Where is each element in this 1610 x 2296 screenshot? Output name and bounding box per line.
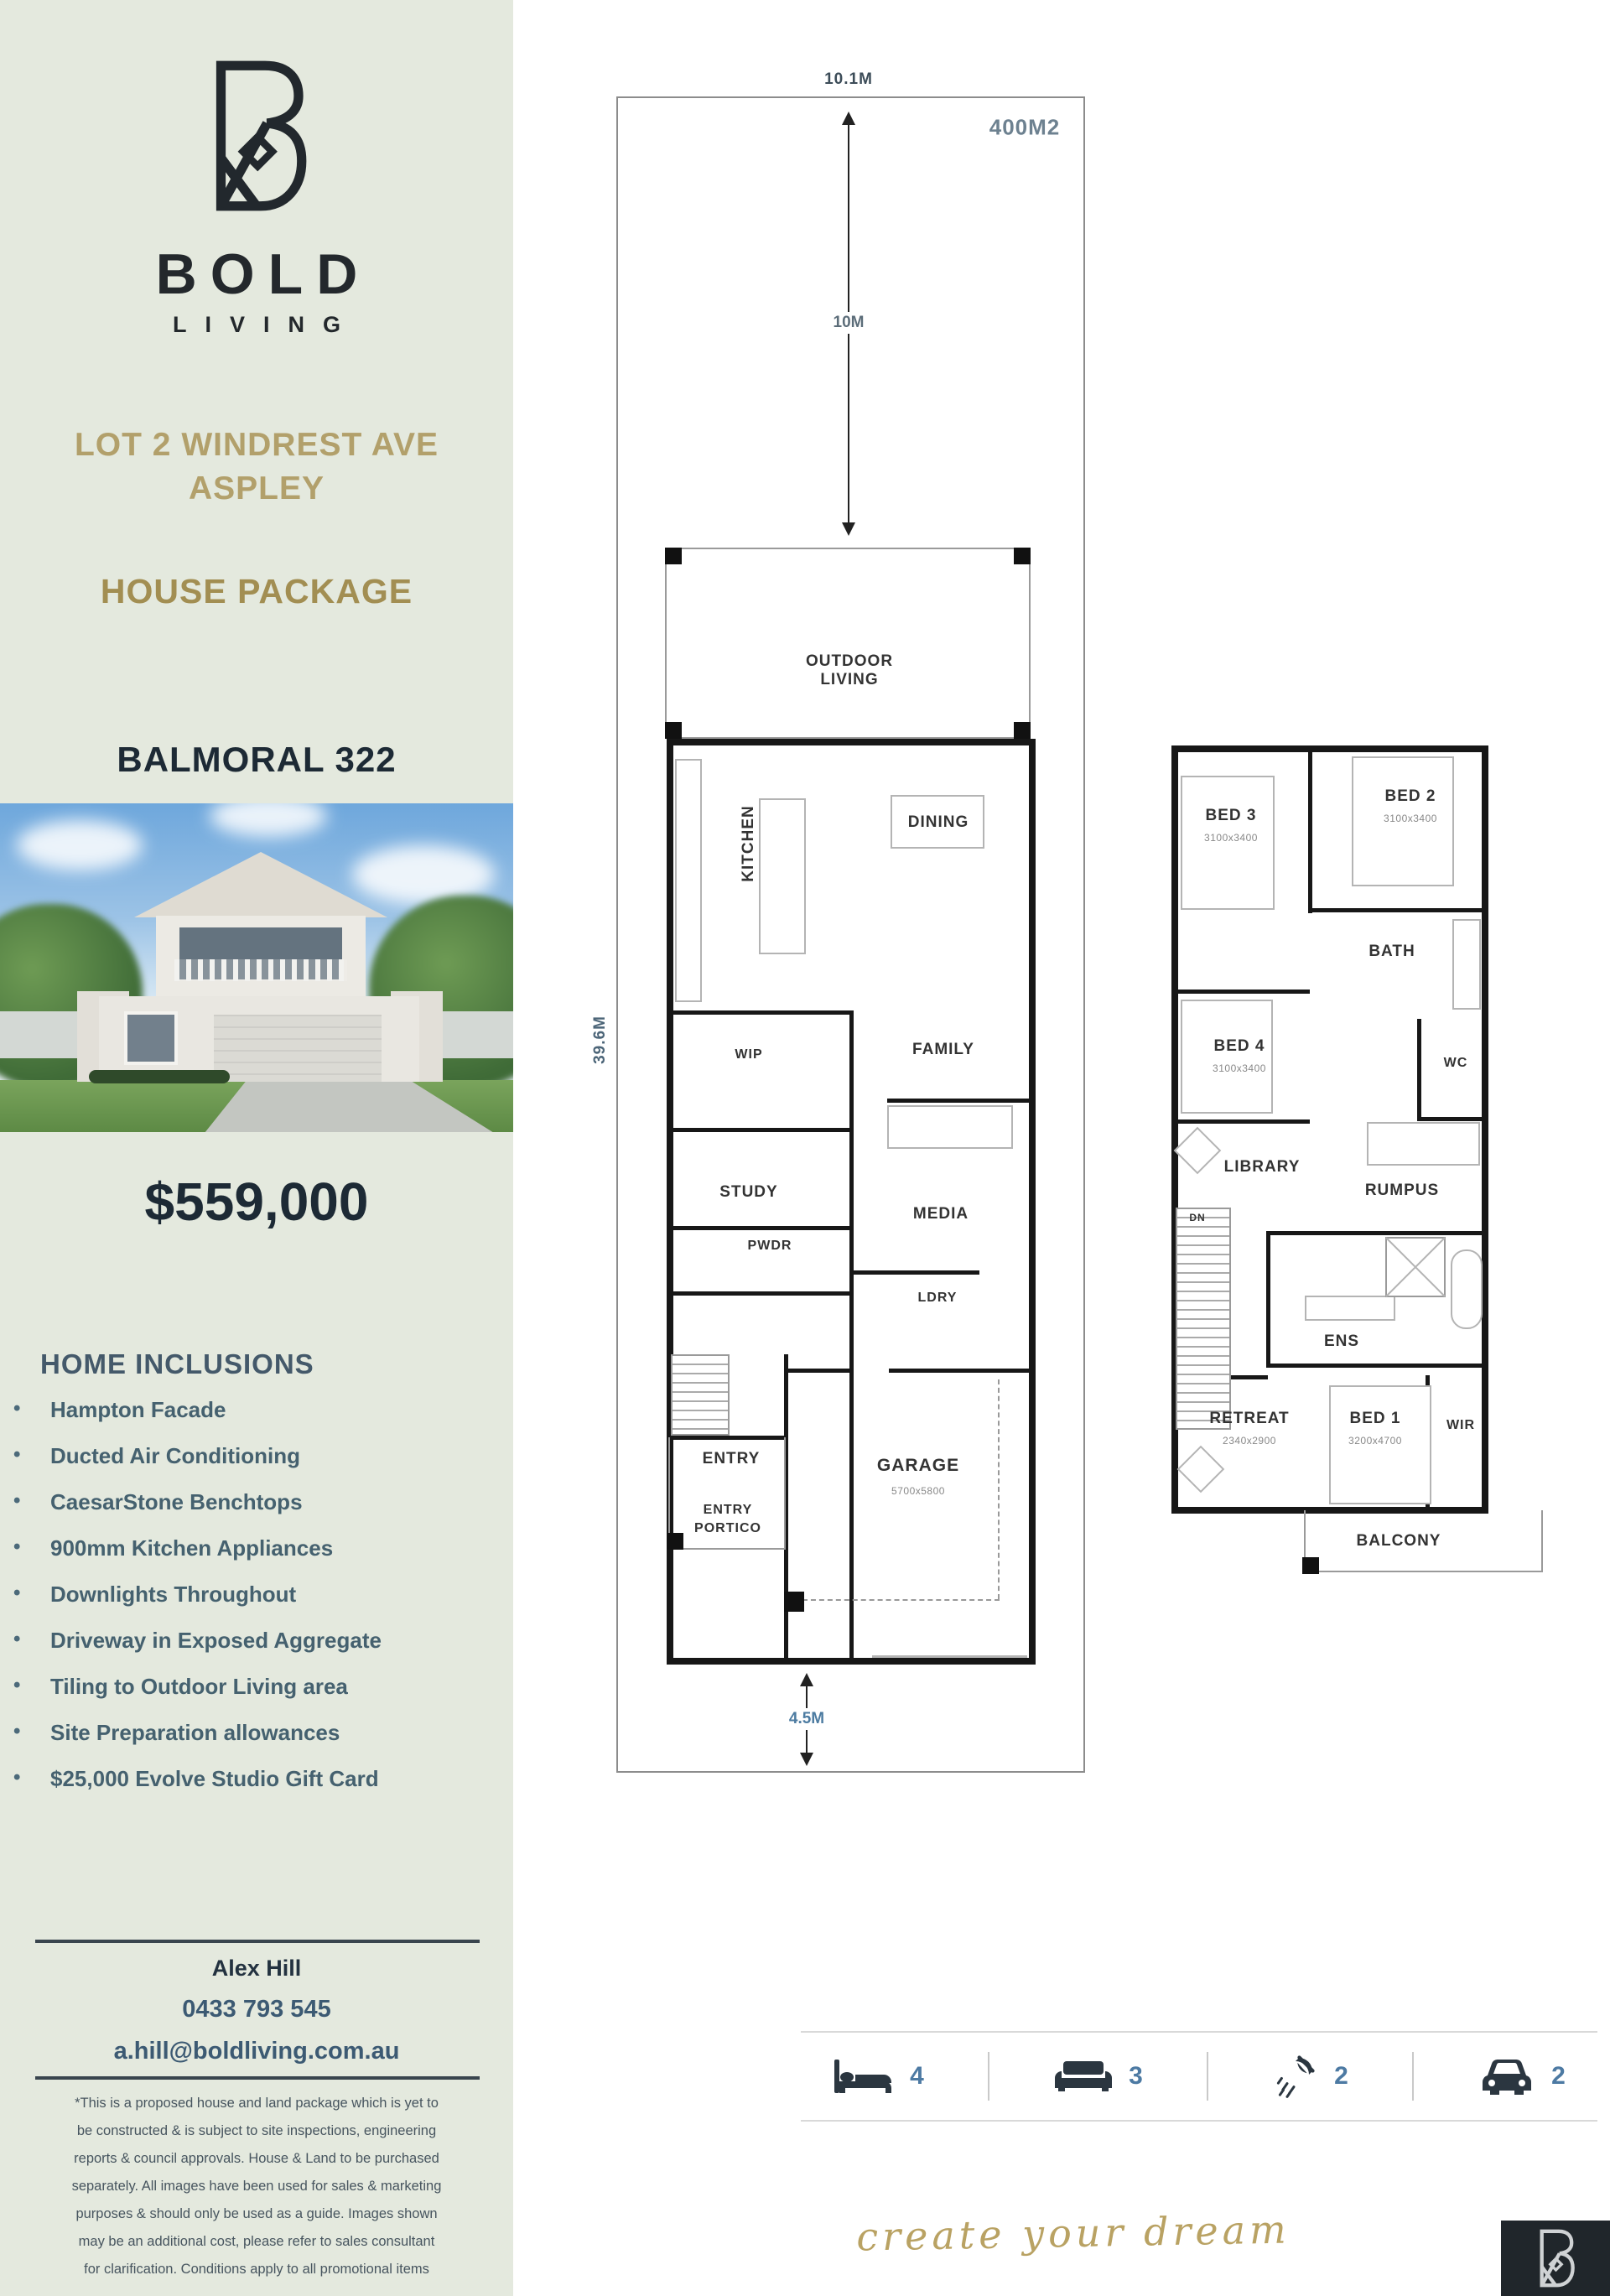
room-dims-bed1: 3200x4700 <box>1348 1435 1402 1447</box>
kitchen-bench <box>675 759 702 1002</box>
list-item: •900mm Kitchen Appliances <box>0 1535 503 1561</box>
inclusion-text: 900mm Kitchen Appliances <box>50 1535 333 1561</box>
garage-door <box>214 1015 382 1082</box>
house-photo <box>0 803 513 1132</box>
inclusion-text: Driveway in Exposed Aggregate <box>50 1628 382 1654</box>
cloud <box>17 820 143 870</box>
bold-living-logo-icon <box>206 57 307 215</box>
brand-subname: LIVING <box>0 312 513 338</box>
house-roof <box>134 852 387 917</box>
arrow-down-icon <box>842 522 855 536</box>
bullet-icon: • <box>0 1628 50 1651</box>
list-item: •Site Preparation allowances <box>0 1720 503 1746</box>
plan-name: BALMORAL 322 <box>0 740 513 780</box>
hedge <box>89 1070 230 1083</box>
stairs-dn-label: DN <box>1189 1212 1205 1223</box>
room-label-outdoor-living: OUTDOOR LIVING <box>791 652 908 689</box>
bullet-icon: • <box>0 1443 50 1467</box>
outdoor-living-walls <box>665 548 1031 739</box>
room-label-media: MEDIA <box>913 1205 969 1223</box>
disclaimer: *This is a proposed house and land packa… <box>30 2090 483 2283</box>
divider <box>1207 2052 1208 2101</box>
list-item: •Ducted Air Conditioning <box>0 1443 503 1469</box>
room-label-bed3: BED 3 <box>1206 807 1257 825</box>
room-label-wip: WIP <box>735 1047 762 1062</box>
room-label-bed1: BED 1 <box>1350 1410 1401 1428</box>
room-label-bed2: BED 2 <box>1385 787 1436 806</box>
disclaimer-line: *This is a proposed house and land packa… <box>30 2090 483 2117</box>
room-label-library: LIBRARY <box>1224 1158 1301 1177</box>
sidebar: BOLD LIVING LOT 2 WINDREST AVE ASPLEY HO… <box>0 0 513 2296</box>
room-label-entry-portico: ENTRY PORTICO <box>678 1501 778 1538</box>
post <box>1014 722 1031 739</box>
room-label-family: FAMILY <box>912 1041 974 1059</box>
beds-count: 4 <box>910 2062 924 2091</box>
flyer-page: BOLD LIVING LOT 2 WINDREST AVE ASPLEY HO… <box>0 0 1610 2296</box>
baths-count: 2 <box>1334 2062 1348 2091</box>
wall <box>1176 990 1310 994</box>
inclusion-text: Ducted Air Conditioning <box>50 1443 300 1469</box>
footer-logo <box>1501 2221 1610 2296</box>
summary-row: 4 3 2 <box>801 2031 1597 2122</box>
disclaimer-line: may be an additional cost, please refer … <box>30 2228 483 2256</box>
room-label-wir: WIR <box>1446 1418 1475 1433</box>
list-item: •$25,000 Evolve Studio Gift Card <box>0 1766 503 1792</box>
driveway-dashed-line <box>998 1379 1000 1599</box>
wall <box>1266 1364 1486 1368</box>
divider <box>35 2076 480 2080</box>
room-label-ldry: LDRY <box>918 1291 958 1306</box>
disclaimer-line: be constructed & is subject to site insp… <box>30 2117 483 2145</box>
wall <box>1308 908 1484 912</box>
post <box>784 1592 804 1612</box>
house-window <box>124 1011 178 1065</box>
room-label-garage: GARAGE <box>877 1456 959 1476</box>
cars-count: 2 <box>1551 2062 1566 2091</box>
disclaimer-line: for clarification. Conditions apply to a… <box>30 2256 483 2283</box>
sofa <box>1367 1122 1480 1166</box>
room-label-pwdr: PWDR <box>748 1239 792 1254</box>
kitchen-island <box>759 798 806 954</box>
room-dims-bed4: 3100x3400 <box>1213 1062 1266 1074</box>
bullet-icon: • <box>0 1535 50 1559</box>
room-label-study: STUDY <box>719 1183 777 1202</box>
inclusion-text: CaesarStone Benchtops <box>50 1489 303 1515</box>
wall <box>784 1369 851 1373</box>
post <box>1302 1557 1319 1574</box>
inclusion-text: Tiling to Outdoor Living area <box>50 1674 348 1700</box>
driveway-dashed-line <box>802 1599 1000 1601</box>
list-item: •Downlights Throughout <box>0 1582 503 1608</box>
bullet-icon: • <box>0 1397 50 1421</box>
wall <box>1308 750 1312 913</box>
bullet-icon: • <box>0 1674 50 1697</box>
rear-setback-dimension: 4.5M <box>784 1708 829 1730</box>
room-label-rumpus: RUMPUS <box>1365 1182 1439 1200</box>
bullet-icon: • <box>0 1766 50 1790</box>
lot-address-line2: ASPLEY <box>0 467 513 511</box>
wall <box>671 1010 851 1015</box>
list-item: •Driveway in Exposed Aggregate <box>0 1628 503 1654</box>
package-price: $559,000 <box>0 1171 513 1233</box>
sofa <box>887 1105 1013 1149</box>
list-item: •CaesarStone Benchtops <box>0 1489 503 1515</box>
summary-baths: 2 <box>1272 2054 1348 2098</box>
bullet-icon: • <box>0 1720 50 1743</box>
wall <box>849 1270 979 1275</box>
post <box>1014 548 1031 564</box>
room-label-kitchen: KITCHEN <box>740 805 758 881</box>
wall <box>849 1010 854 1665</box>
post <box>665 722 682 739</box>
disclaimer-line: separately. All images have been used fo… <box>30 2173 483 2200</box>
list-item: •Tiling to Outdoor Living area <box>0 1674 503 1700</box>
staircase <box>671 1354 730 1436</box>
room-dims-bed3: 3100x3400 <box>1204 832 1258 844</box>
inclusions-title: HOME INCLUSIONS <box>40 1348 314 1380</box>
summary-cars: 2 <box>1478 2055 1566 2097</box>
room-label-ens: ENS <box>1324 1332 1359 1351</box>
inclusion-text: $25,000 Evolve Studio Gift Card <box>50 1766 379 1792</box>
room-label-dining: DINING <box>908 813 969 832</box>
consultant-name: Alex Hill <box>0 1956 513 1982</box>
room-dims-retreat: 2340x2900 <box>1223 1435 1276 1447</box>
bathtub <box>1452 919 1481 1010</box>
wall <box>671 1226 851 1230</box>
garage-door-line <box>872 1655 1027 1658</box>
room-label-bath: BATH <box>1368 943 1415 961</box>
lot-address: LOT 2 WINDREST AVE ASPLEY <box>0 423 513 511</box>
bed-icon <box>833 2056 895 2096</box>
staircase <box>1176 1208 1231 1430</box>
wall <box>1176 1119 1310 1124</box>
brand-name: BOLD <box>0 242 513 307</box>
vanity <box>1305 1296 1395 1321</box>
wall <box>889 1369 1031 1373</box>
bullet-icon: • <box>0 1582 50 1605</box>
wall <box>671 1291 851 1296</box>
inclusion-text: Site Preparation allowances <box>50 1720 340 1746</box>
sofa-icon <box>1053 2056 1114 2096</box>
consultant-email[interactable]: a.hill@boldliving.com.au <box>0 2038 513 2065</box>
front-setback-dimension: 10M <box>828 312 870 334</box>
shower-icon <box>1272 2054 1319 2098</box>
inclusions-list: •Hampton Facade •Ducted Air Conditioning… <box>0 1397 503 1812</box>
wall <box>887 1099 1031 1103</box>
room-label-balcony: BALCONY <box>1357 1532 1441 1551</box>
lot-area-label: 400M2 <box>989 115 1061 141</box>
bold-living-logo-icon <box>1535 2228 1576 2288</box>
room-dims-bed2: 3100x3400 <box>1384 813 1437 824</box>
room-label-bed4: BED 4 <box>1214 1037 1265 1056</box>
room-label-wc: WC <box>1444 1056 1468 1071</box>
room-dims-garage: 5700x5800 <box>891 1485 945 1497</box>
lot-width-dimension: 10.1M <box>824 70 873 89</box>
disclaimer-line: reports & council approvals. House & Lan… <box>30 2145 483 2173</box>
list-item: •Hampton Facade <box>0 1397 503 1423</box>
balcony-railing <box>174 959 347 981</box>
wall <box>1266 1231 1270 1365</box>
cloud <box>210 803 327 837</box>
lot-address-line1: LOT 2 WINDREST AVE <box>0 423 513 467</box>
bathtub <box>1451 1249 1483 1329</box>
package-label: HOUSE PACKAGE <box>0 572 513 611</box>
wall <box>1417 1019 1421 1119</box>
shower-box <box>1385 1237 1446 1297</box>
consultant-phone[interactable]: 0433 793 545 <box>0 1996 513 2023</box>
car-icon <box>1478 2055 1536 2097</box>
bed <box>1181 1000 1273 1114</box>
divider <box>1412 2052 1414 2101</box>
wall <box>671 1128 851 1132</box>
wall <box>1266 1231 1486 1235</box>
disclaimer-line: purposes & should only be used as a guid… <box>30 2200 483 2228</box>
summary-beds: 4 <box>833 2056 924 2096</box>
inclusion-text: Hampton Facade <box>50 1397 226 1423</box>
room-label-retreat: RETREAT <box>1209 1410 1289 1428</box>
room-label-entry: ENTRY <box>703 1450 761 1468</box>
bullet-icon: • <box>0 1489 50 1513</box>
inclusion-text: Downlights Throughout <box>50 1582 296 1608</box>
divider <box>988 2052 989 2101</box>
tagline: create your dream <box>855 2206 1292 2259</box>
divider <box>35 1940 480 1943</box>
lot-depth-dimension: 39.6M <box>589 1010 611 1069</box>
living-count: 3 <box>1129 2062 1143 2091</box>
post <box>665 548 682 564</box>
wall <box>1417 1117 1486 1121</box>
arrow-down-icon <box>800 1753 813 1766</box>
summary-living: 3 <box>1053 2056 1143 2096</box>
